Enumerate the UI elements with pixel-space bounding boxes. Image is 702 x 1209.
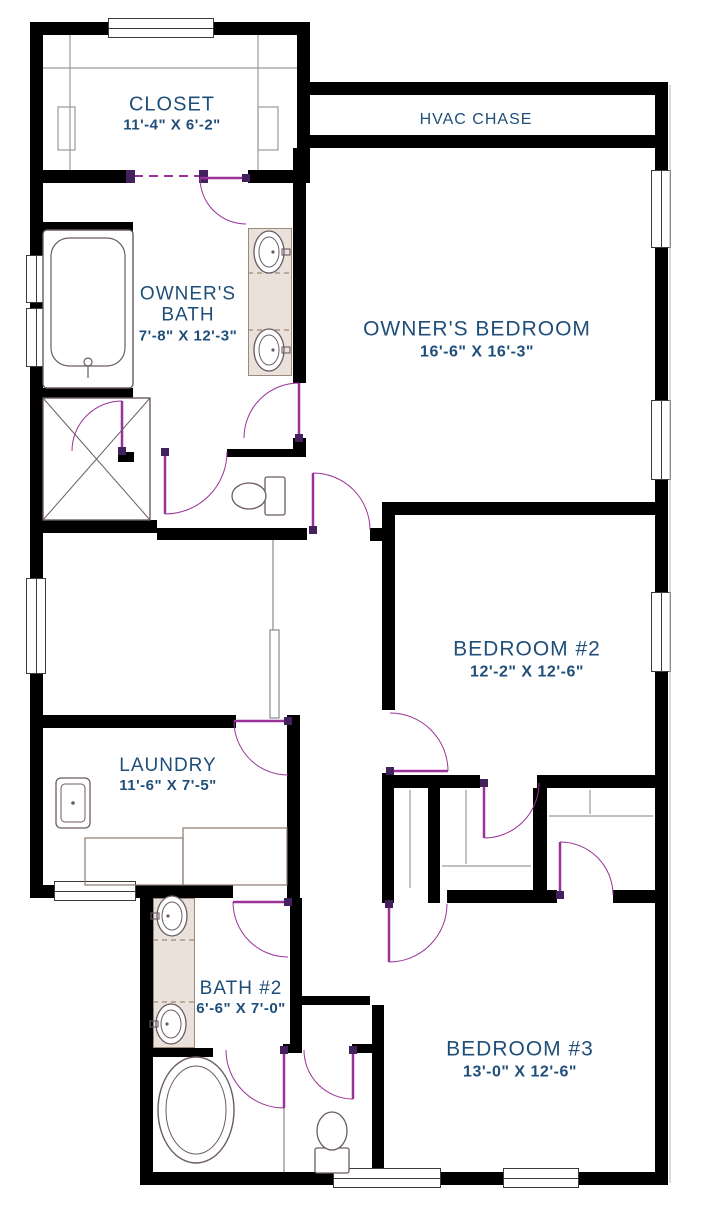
window (651, 400, 671, 480)
counter-outline (85, 838, 183, 885)
window-glass-line (661, 593, 662, 671)
wall (30, 715, 236, 728)
counter-outline (183, 828, 287, 885)
wall (370, 528, 382, 541)
room-label-owners-bedroom: OWNER'S BEDROOM 16'-6" X 16'-3" (363, 317, 591, 360)
owners-bedroom-door-hinge (309, 526, 317, 534)
opening-jamb (199, 170, 208, 183)
wall (533, 788, 547, 903)
wall (382, 773, 394, 903)
window (54, 881, 136, 901)
window (651, 170, 671, 248)
wall (382, 502, 395, 710)
bath2-vanity-counter (153, 898, 195, 1048)
room-label-bath-2: BATH #2 6'-6" X 7'-0" (196, 978, 286, 1018)
laundry-door-swing-arc (234, 721, 288, 775)
wall (140, 898, 153, 1172)
utility-sink (56, 778, 90, 828)
window (26, 255, 46, 303)
wall (447, 890, 557, 903)
wall (30, 520, 157, 533)
room-dims: 16'-6" X 16'-3" (363, 343, 591, 361)
room-dims: 11'-4" X 6'-2" (123, 118, 221, 135)
window-glass-line (661, 401, 662, 479)
bedroom3-closet-door-hinge (556, 891, 564, 899)
window-glass-line (109, 28, 213, 29)
floor-plan: CLOSET 11'-4" X 6'-2" HVAC CHASE OWNER'S… (0, 0, 702, 1209)
bedroom2-closet-door-hinge (480, 779, 488, 787)
wall (310, 135, 655, 148)
garden-tub (158, 1057, 234, 1163)
wall (157, 528, 307, 540)
room-dims: 7'-8" X 12'-3" (123, 328, 253, 345)
room-name: BATH #2 (196, 978, 286, 999)
window (108, 18, 214, 38)
toilet-tank (265, 477, 285, 515)
owners-bath-door-swing-arc (244, 383, 299, 438)
toilet-bowl (317, 1112, 347, 1150)
room-name: LAUNDRY (119, 755, 217, 776)
wall (118, 452, 134, 462)
rail-outline (270, 630, 279, 718)
room-dims: 12'-2" X 12'-6" (453, 663, 601, 681)
wall (392, 775, 480, 788)
room-dims: 6'-6" X 7'-0" (196, 1001, 286, 1018)
shower-door-swing-arc (72, 401, 122, 451)
room-name: OWNER'S BEDROOM (363, 317, 591, 341)
window-glass-line (36, 579, 37, 673)
wall (613, 890, 655, 903)
room-name: BEDROOM #2 (453, 637, 601, 661)
utility-sink-drain (71, 801, 75, 805)
bedroom2-door-swing-arc (390, 713, 448, 771)
owners-bedroom-door-swing-arc (313, 473, 370, 530)
wall (293, 148, 306, 383)
wetroom-door-swing-arc (226, 1050, 284, 1108)
room-label-closet: CLOSET 11'-4" X 6'-2" (123, 93, 221, 134)
closet-to-bath-door-swing-arc (200, 178, 246, 224)
wall (302, 996, 370, 1005)
shelf-outline (58, 107, 75, 150)
window (651, 592, 671, 672)
bathtub-faucet (84, 358, 92, 366)
window (503, 1168, 579, 1188)
wall (153, 1048, 213, 1057)
wall (283, 1044, 302, 1053)
room-label-laundry: LAUNDRY 11'-6" X 7'-5" (119, 755, 217, 795)
wall (297, 82, 668, 95)
wall (428, 788, 440, 903)
room-label-bedroom-2: BEDROOM #2 12'-2" X 12'-6" (453, 637, 601, 680)
room-label-owners-bath: OWNER'S BATH 7'-8" X 12'-3" (123, 283, 253, 344)
room-label-bedroom-3: BEDROOM #3 13'-0" X 12'-6" (446, 1037, 594, 1080)
wall (30, 170, 130, 183)
room-name: BEDROOM #3 (446, 1037, 594, 1061)
shelf-outline (258, 107, 278, 150)
wall (287, 715, 300, 898)
window-glass-line (504, 1178, 578, 1179)
wall (537, 775, 655, 788)
utility-sink-basin (61, 784, 85, 822)
room-name: OWNER'S BATH (123, 283, 253, 326)
wall (30, 22, 43, 898)
wall (30, 388, 133, 398)
window (333, 1168, 441, 1188)
wall (153, 885, 233, 898)
bedroom2-closet-door-swing-arc (484, 783, 539, 838)
window (26, 308, 46, 367)
garden-tub-basin (166, 1066, 226, 1154)
room-label-hvac-chase: HVAC CHASE (420, 111, 533, 129)
wall (352, 1044, 372, 1053)
wall (227, 449, 300, 457)
window-glass-line (55, 891, 135, 892)
bedroom3-closet-door-swing-arc (560, 842, 613, 895)
bath2-door-swing-arc (233, 902, 288, 957)
window (26, 578, 46, 674)
wall (382, 502, 655, 515)
wall (30, 222, 133, 232)
toilet-compartment-door-swing-arc (304, 1050, 353, 1099)
room-name: CLOSET (123, 93, 221, 115)
bedroom3-door-swing-arc (389, 904, 447, 962)
bathtub (43, 230, 133, 388)
room-name: HVAC CHASE (420, 111, 533, 129)
wall (290, 898, 302, 1048)
wall (372, 1005, 384, 1172)
window-glass-line (36, 309, 37, 366)
room-dims: 13'-0" X 12'-6" (446, 1063, 594, 1081)
window-glass-line (334, 1178, 440, 1179)
toilet-bowl (232, 483, 266, 509)
water-closet-door-swing-arc (165, 452, 227, 514)
room-dims: 11'-6" X 7'-5" (119, 778, 217, 795)
water-closet-door-hinge (161, 448, 169, 456)
window-glass-line (661, 171, 662, 247)
bathtub-basin (51, 238, 125, 366)
owners-bath-vanity-counter (248, 228, 292, 376)
window-glass-line (36, 256, 37, 302)
